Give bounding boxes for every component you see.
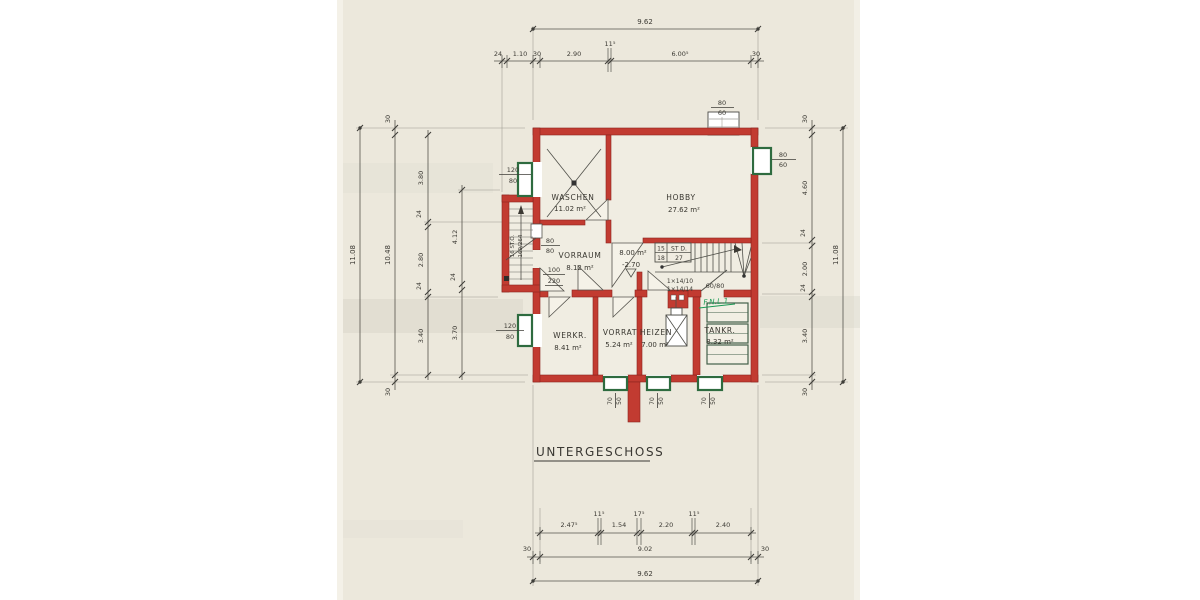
label-vorraum: VORRAUM: [558, 251, 601, 260]
win-klein-den: 80: [546, 247, 554, 255]
window-bottom-3: [698, 377, 722, 390]
dim-right-24a: 24: [800, 229, 807, 237]
stair-winder-pivot: [742, 274, 746, 278]
chimney-num: 80: [718, 99, 726, 107]
wall-bottom-3: [671, 375, 697, 382]
scanned-floorplan-page: 9.62 24 1.10 30 2.90 11⁵ 6.00⁵ 30: [0, 0, 1200, 600]
wall-left-5: [533, 346, 540, 382]
stair-count: 15: [657, 246, 665, 253]
door-entr-den: 220: [548, 277, 560, 285]
dim-left-overall: 11.08: [349, 245, 357, 265]
dim-right-460: 4.60: [801, 181, 809, 195]
label-tankraum: TANKR.: [703, 326, 735, 335]
wall-extstair-bottom: [502, 285, 540, 292]
window-bottom-1: [604, 377, 627, 390]
dim-left-280: 2.80: [417, 253, 425, 267]
label-hobby: HOBBY: [666, 193, 696, 202]
dim-bot-2475: 2.47⁵: [560, 521, 577, 529]
chimney-den: 60: [718, 109, 726, 117]
dim-left-30t: 30: [384, 115, 392, 123]
dim-left-340: 3.40: [417, 329, 425, 343]
label-heizen: HEIZEN: [640, 328, 672, 337]
dim-top-24: 24: [494, 50, 502, 58]
dim-left-24a: 24: [416, 210, 423, 218]
svg-text:70: 70: [649, 397, 656, 405]
dim-right-340: 3.40: [801, 329, 809, 343]
wall-bottom-2: [628, 375, 646, 382]
door-entr-num: 100: [548, 266, 560, 274]
win-waschen-num: 120: [507, 166, 519, 174]
dim-right-30b: 30: [801, 388, 809, 396]
wall-hall-stub: [637, 272, 642, 290]
dim-top-110: 1.10: [513, 50, 527, 58]
dim-right-overall: 11.08: [832, 245, 840, 265]
svg-text:50: 50: [658, 397, 665, 405]
wall-right-1: [751, 128, 758, 147]
dim-bot-30l: 30: [523, 545, 531, 553]
wall-right-2: [751, 174, 758, 382]
window-waschen: [518, 163, 532, 196]
dim-bot-902: 9.02: [638, 545, 652, 553]
dim-right-200: 2.00: [801, 262, 809, 276]
win-klein-num: 80: [546, 237, 554, 245]
dim-top-30r: 30: [752, 50, 760, 58]
drawing-title: UNTERGESCHOSS: [534, 445, 664, 461]
wall-hobby-south: [643, 238, 751, 243]
wall-waschen-south: [540, 220, 585, 225]
wall-waschen-hobby: [606, 135, 611, 200]
note-steps-2: 1×14/14: [667, 286, 693, 293]
level-flur: -2.70: [622, 261, 640, 269]
area-vorraum: 8.12 m²: [566, 264, 594, 272]
stair-unit: ST D.: [671, 246, 687, 253]
window-hobby: [753, 148, 771, 174]
dim-left-370: 3.70: [451, 326, 459, 340]
area-tankraum: 8.32 m²: [706, 338, 734, 346]
area-vorrat: 5.24 m²: [605, 341, 633, 349]
dim-top-290: 2.90: [567, 50, 581, 58]
wall-mid-2: [572, 290, 612, 297]
wall-left-2: [533, 196, 540, 224]
dim-left-24c: 24: [450, 273, 457, 281]
dim-top-overall: 9.62: [637, 18, 653, 26]
dim-bot-115a: 11⁵: [594, 510, 605, 518]
area-heizen: 7.00 m²: [641, 341, 669, 349]
dim-bot-115b: 11⁵: [689, 510, 700, 518]
dim-top-115: 11⁵: [605, 40, 616, 48]
win-werkr-den: 80: [506, 333, 514, 341]
label-door-tank: 60/80: [706, 282, 725, 290]
dim-top-6005: 6.00⁵: [671, 50, 688, 58]
dim-bot-220: 2.20: [659, 521, 673, 529]
dim-bot-overall: 9.62: [637, 570, 653, 578]
dim-right-30t: 30: [801, 115, 809, 123]
dim-bot-175: 17⁵: [634, 510, 645, 518]
svg-text:70: 70: [607, 397, 614, 405]
dim-left-30b: 30: [384, 388, 392, 396]
wall-top: [533, 128, 758, 135]
stair-riser: 18: [657, 255, 665, 262]
window-kleinfenster: [531, 224, 542, 238]
wall-werkr-vorrat: [593, 297, 598, 375]
label-werkraum: WERKR.: [553, 331, 587, 340]
area-flur: 8.00 m²: [619, 249, 647, 257]
dim-left-1048: 10.48: [384, 245, 392, 265]
exterior-stair-label-1: 16 ST.Ö.: [509, 234, 516, 257]
win-hobby-num: 80: [779, 151, 787, 159]
wall-bottom-1: [533, 375, 603, 382]
floorplan: 16 ST.Ö. 169/264 15 ST D. 18 27: [496, 99, 796, 422]
page-title: UNTERGESCHOSS: [536, 445, 664, 459]
dim-bot-154: 1.54: [612, 521, 626, 529]
flue-block: [668, 291, 688, 308]
area-hobby: 27.62 m²: [668, 206, 700, 214]
dim-bot-30r: 30: [761, 545, 769, 553]
wall-heizen-tankr: [693, 297, 700, 375]
dim-right-24b: 24: [800, 284, 807, 292]
wall-mid-5: [724, 290, 751, 297]
svg-text:70: 70: [701, 397, 708, 405]
wall-left-1: [533, 128, 540, 163]
stair-tread: 27: [675, 255, 683, 262]
wall-stub-below: [628, 382, 640, 422]
paper-edge-left: [337, 0, 343, 600]
wall-mid-3: [635, 290, 647, 297]
window-bottom-2: [647, 377, 670, 390]
exterior-stair-door: [504, 276, 509, 281]
svg-text:50: 50: [710, 397, 717, 405]
area-waschen: 11.02 m²: [554, 205, 586, 213]
label-vorrat: VORRAT: [603, 328, 637, 337]
dim-left-380: 3.80: [417, 171, 425, 185]
dim-top-30l: 30: [533, 50, 541, 58]
note-steps-1: 1×14/10: [667, 278, 693, 285]
win-hobby-den: 60: [779, 161, 787, 169]
label-waschen: WASCHEN: [551, 193, 594, 202]
dim-bot-240: 2.40: [716, 521, 730, 529]
win-waschen-den: 80: [509, 177, 517, 185]
wall-vorraum-east: [606, 220, 611, 243]
dim-left-24b: 24: [416, 282, 423, 290]
win-werkr-num: 120: [504, 322, 516, 330]
area-werkraum: 8.41 m²: [554, 344, 582, 352]
exterior-stair-label-2: 169/264: [518, 234, 524, 257]
svg-text:50: 50: [616, 397, 623, 405]
dim-left-412: 4.12: [451, 230, 459, 244]
